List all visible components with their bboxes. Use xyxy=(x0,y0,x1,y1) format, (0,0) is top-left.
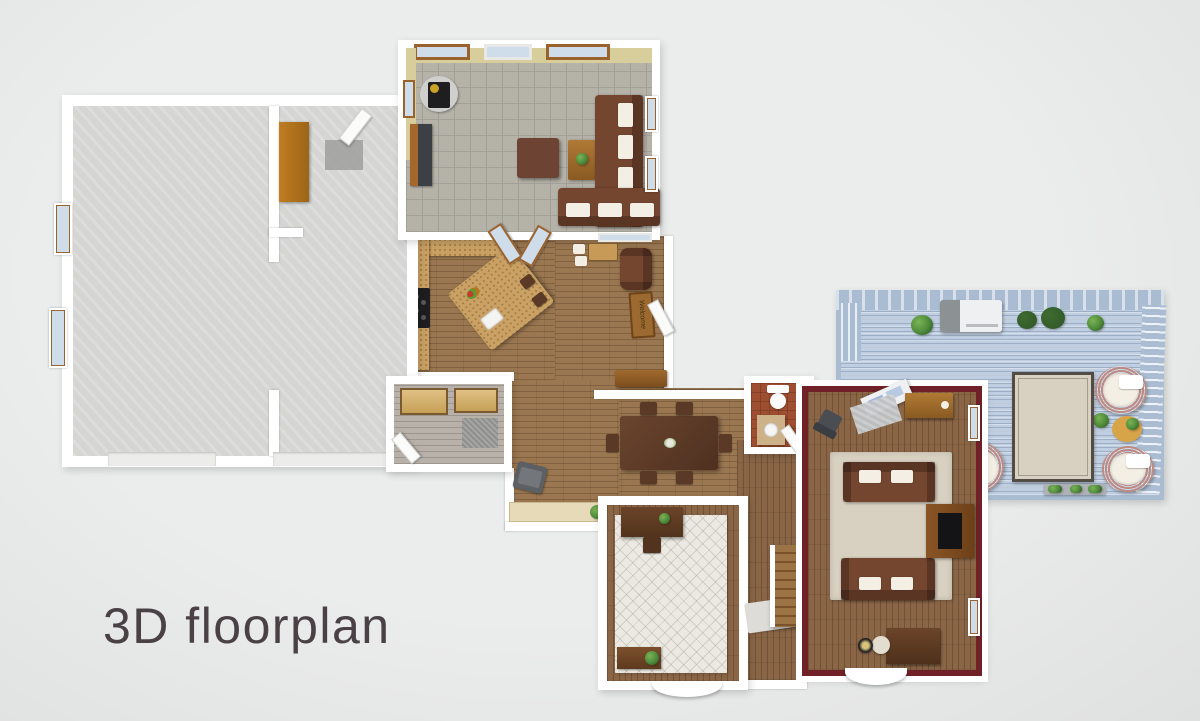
table-plant xyxy=(576,153,588,165)
sectional-sofa xyxy=(558,188,660,226)
dining-chair xyxy=(640,402,657,415)
grill-handle xyxy=(966,324,998,327)
window xyxy=(484,44,532,60)
window xyxy=(645,156,658,192)
wood-stove xyxy=(420,76,458,112)
fireplace-insert xyxy=(938,513,962,549)
centerpiece xyxy=(664,438,676,448)
page-title: 3D floorplan xyxy=(103,597,391,655)
welcome-mat: Welcome xyxy=(628,291,655,339)
family-room xyxy=(802,386,982,676)
planter-greens xyxy=(1048,485,1062,493)
mudroom-bench xyxy=(400,388,448,415)
sink xyxy=(764,423,778,437)
writing-desk xyxy=(886,628,940,664)
deck-rail-left xyxy=(841,303,861,361)
dining-chair xyxy=(676,471,693,484)
burner xyxy=(421,315,426,320)
dining-chair xyxy=(606,434,619,452)
side-table xyxy=(1112,416,1142,442)
living-top-wall xyxy=(406,48,652,63)
floor-mat xyxy=(325,140,363,170)
leather-sofa xyxy=(841,558,935,600)
garage-divider-wall xyxy=(269,106,279,262)
ottoman xyxy=(517,138,559,178)
bbq-grill xyxy=(940,300,1002,332)
hall-right-wall xyxy=(664,236,673,388)
window xyxy=(968,598,980,636)
diamond-rug xyxy=(850,394,902,435)
corridor-bottom-wall xyxy=(505,522,607,531)
window xyxy=(546,44,610,60)
fireplace xyxy=(926,504,974,558)
dining-chair xyxy=(640,471,657,484)
bedroom-office xyxy=(598,496,748,690)
mudroom-mat xyxy=(462,418,498,448)
bay-window xyxy=(652,681,722,697)
potted-plant xyxy=(1041,307,1065,329)
wicker-chair xyxy=(1095,366,1147,414)
wicker-chair xyxy=(1102,446,1154,492)
media-console xyxy=(410,124,432,186)
desk-chair xyxy=(872,636,890,654)
bench-seat xyxy=(517,467,542,489)
garage-divider-wall xyxy=(269,228,303,237)
desk-plant xyxy=(659,513,670,524)
stove-kettle xyxy=(430,84,439,93)
bedroom-cabinet xyxy=(617,647,661,669)
planter-greens xyxy=(1088,485,1102,493)
garage xyxy=(62,95,418,467)
window xyxy=(414,44,470,60)
living-room xyxy=(398,40,660,240)
mudroom-bench xyxy=(454,388,498,413)
island-sink xyxy=(480,307,504,330)
sliding-glass-door xyxy=(598,233,652,242)
bookcase xyxy=(905,393,953,418)
toilet-bowl xyxy=(770,393,786,409)
fruit-bowl xyxy=(465,285,482,301)
toilet-tank xyxy=(767,385,789,393)
window xyxy=(968,405,980,441)
potted-plant xyxy=(911,315,933,335)
sideboard xyxy=(615,370,667,387)
window xyxy=(403,80,415,118)
planter-greens xyxy=(1070,485,1082,493)
dining-chair xyxy=(719,434,732,452)
desk-chair xyxy=(643,537,661,553)
welcome-mat-text: Welcome xyxy=(631,293,654,336)
bedroom-desk xyxy=(621,507,683,537)
office-chair xyxy=(810,406,847,445)
garage-window xyxy=(54,203,72,255)
window xyxy=(645,96,658,132)
mudroom-door xyxy=(391,432,421,464)
potted-plant xyxy=(1017,311,1037,329)
planter-box xyxy=(1044,484,1106,495)
stool xyxy=(575,256,587,266)
armchair xyxy=(620,248,652,290)
storage-cabinet xyxy=(279,122,309,202)
leather-sofa xyxy=(843,462,935,502)
scene-background: Welcome xyxy=(0,0,1200,721)
potted-plant xyxy=(1093,413,1109,428)
dining-chair xyxy=(676,402,693,415)
hall-console xyxy=(509,502,607,522)
garage-divider-wall xyxy=(269,390,279,456)
table-plant xyxy=(1126,418,1139,430)
garage-door-opening xyxy=(108,452,216,466)
side-table-lamp xyxy=(858,638,873,653)
vase xyxy=(941,401,949,409)
bay-window xyxy=(845,668,907,685)
cafe-table xyxy=(588,243,618,261)
burner xyxy=(421,300,426,305)
cabinet-plant xyxy=(645,651,659,665)
mudroom xyxy=(386,376,512,472)
garage-door-opening xyxy=(273,452,399,466)
garage-window xyxy=(49,308,67,368)
outdoor-rug xyxy=(1012,372,1094,482)
toilet xyxy=(767,385,789,409)
coffee-table xyxy=(568,140,596,180)
stool xyxy=(573,244,585,254)
potted-plant xyxy=(1087,315,1104,331)
dining-table xyxy=(620,416,718,470)
